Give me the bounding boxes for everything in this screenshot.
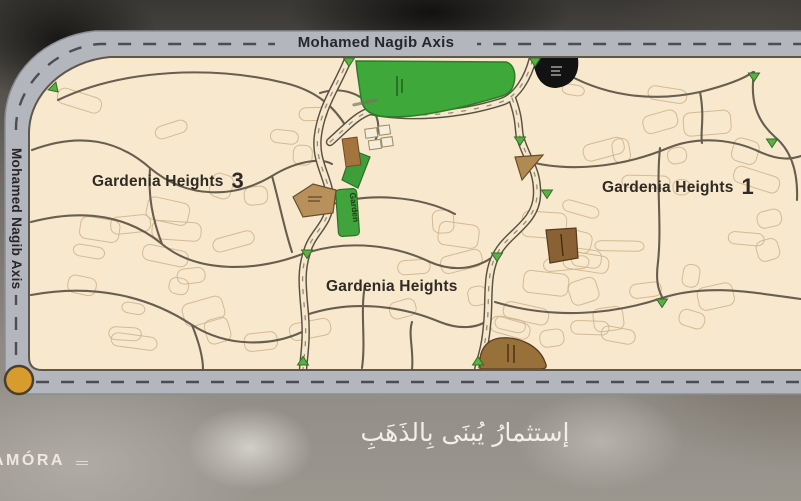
district-number: 1 <box>742 174 754 199</box>
top-axis-road-label: Mohamed Nagib Axis <box>275 34 477 51</box>
left-axis-road-label: Mohamed Nagib Axis <box>9 142 24 295</box>
district-name: Gardenia Heights <box>602 179 734 196</box>
district-label-gardenia-heights-1: Gardenia Heights1 <box>602 174 754 200</box>
district-label-gardenia-heights: Gardenia Heights <box>326 273 466 299</box>
district-name: Gardenia Heights <box>326 278 458 295</box>
roundabout <box>5 366 33 394</box>
district-number: 3 <box>232 168 244 193</box>
brand-logo-subtext <box>76 459 88 467</box>
brand-logo: AMÓRA <box>0 452 65 470</box>
district-name: Gardenia Heights <box>92 173 224 190</box>
masterplan-scene: Garden <box>0 0 801 501</box>
arabic-tagline: إستثمارُ يُبنَى بِالذَهَبِ <box>305 418 625 447</box>
brown-building <box>342 137 361 167</box>
district-label-gardenia-heights-3: Gardenia Heights3 <box>92 168 244 194</box>
